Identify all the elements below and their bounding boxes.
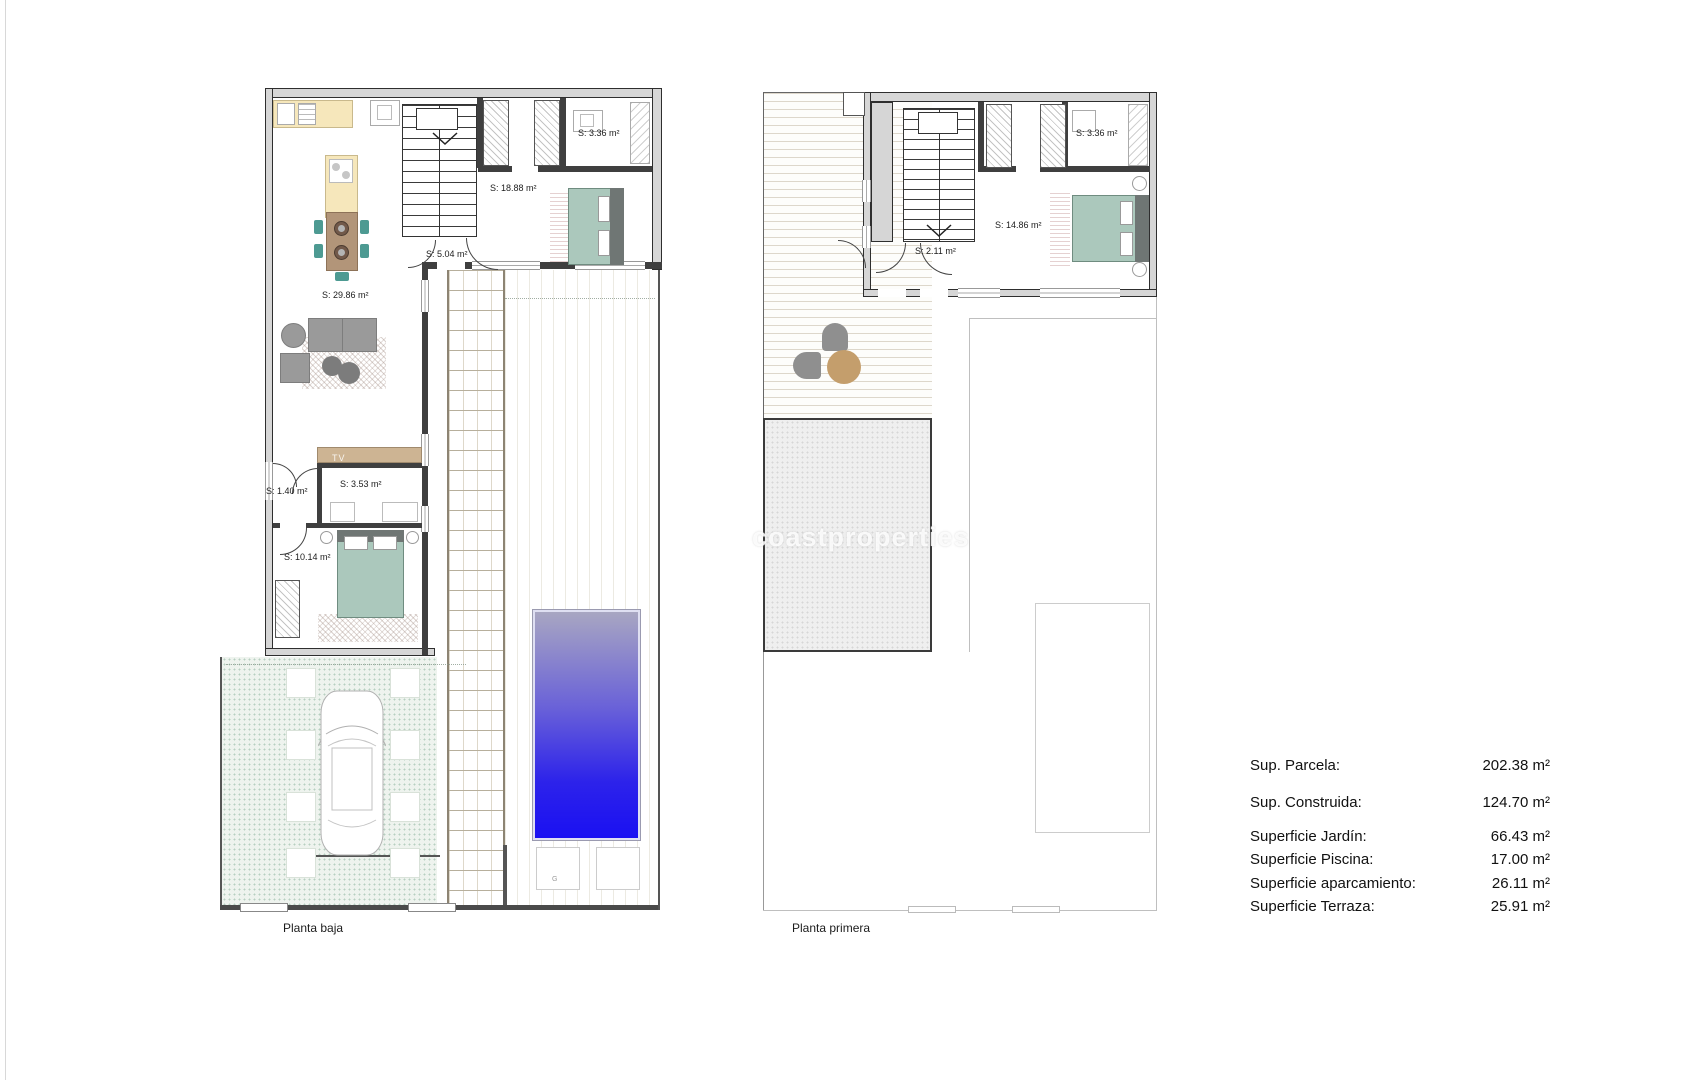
legend-label: Superficie Jardín: — [1250, 828, 1367, 846]
dining-chair — [314, 220, 323, 234]
exterior-wall-left — [265, 88, 273, 655]
room-area-label: S: 18.88 m² — [490, 183, 537, 193]
exterior-wall-top — [863, 92, 1157, 102]
swimming-pool — [533, 610, 640, 840]
wardrobe — [1040, 104, 1066, 168]
bed-headboard — [1135, 195, 1149, 262]
paver — [286, 730, 316, 760]
paver — [286, 792, 316, 822]
window — [421, 506, 429, 532]
roof-outline-line — [763, 910, 1157, 911]
room-area-label: S: 2.11 m² — [915, 246, 956, 256]
partition-closet-bath — [560, 98, 566, 168]
paver — [390, 848, 420, 878]
roof-outline-line — [969, 318, 1157, 319]
room-area-label: S: 1.40 m² — [266, 486, 308, 496]
bedroom-rug — [318, 614, 418, 642]
paver — [390, 792, 420, 822]
patio-dotted-line — [505, 298, 655, 299]
bed-pillow — [1120, 201, 1133, 225]
pool-pad — [596, 847, 640, 890]
paver — [286, 668, 316, 698]
legend-row: Sup. Construida: 124.70 m² — [1250, 794, 1550, 812]
stair-shaft-wall — [871, 102, 893, 242]
window — [862, 180, 871, 202]
wardrobe — [483, 100, 509, 166]
bed-pillow — [598, 196, 610, 222]
dining-chair — [314, 244, 323, 258]
closet-row-wall — [538, 166, 652, 172]
coffee-table — [338, 362, 360, 384]
dining-chair — [360, 244, 369, 258]
wardrobe — [275, 580, 300, 638]
room-area-label: S: 3.53 m² — [340, 479, 382, 489]
roof-outline-line — [969, 318, 970, 652]
sofa-seam — [342, 319, 343, 351]
door-gap — [878, 289, 906, 297]
roof-outline-line — [763, 652, 764, 910]
roof-notch — [908, 906, 956, 913]
window — [421, 280, 429, 312]
wardrobe — [986, 104, 1012, 168]
legend-value: 25.91 m² — [1491, 898, 1550, 916]
floorplan-sheet: G — [0, 0, 1700, 1080]
terrace-table — [827, 350, 861, 384]
kitchen-fridge — [277, 103, 295, 125]
stair-arrow-icon — [926, 224, 952, 238]
roof-notch — [1012, 906, 1060, 913]
burner — [332, 163, 340, 171]
stair-landing — [416, 108, 458, 130]
wall-stub — [503, 845, 507, 905]
deck-walkway — [447, 270, 505, 907]
ceiling-fan — [1132, 262, 1147, 277]
bathroom-sink-basin — [580, 114, 594, 127]
legend-label: Sup. Parcela: — [1250, 757, 1340, 775]
kitchen-oven — [298, 103, 316, 125]
legend-value: 26.11 m² — [1492, 875, 1550, 893]
door-arc — [280, 528, 307, 555]
plan-title-first: Planta primera — [792, 921, 870, 935]
car — [318, 688, 386, 858]
page-edge-line — [5, 0, 6, 1080]
partition-stairs-closet — [978, 102, 984, 168]
dining-chair — [335, 272, 349, 281]
bedroom-rug — [1050, 192, 1070, 266]
burner — [342, 171, 350, 179]
legend-row: Superficie aparcamiento: 26.11 m² — [1250, 875, 1550, 893]
stair-arrow-icon — [432, 132, 458, 146]
legend-value: 17.00 m² — [1491, 851, 1550, 869]
tv-label: TV — [332, 453, 346, 463]
room-area-label: S: 5.04 m² — [426, 249, 468, 259]
plan-title-ground: Planta baja — [283, 921, 343, 935]
wardrobe — [534, 100, 560, 166]
window — [1040, 288, 1120, 298]
dining-plate — [334, 221, 349, 236]
plot-boundary-right — [658, 270, 660, 910]
tv-sideboard: TV — [317, 447, 422, 463]
terrace-chair — [822, 323, 848, 351]
garden-dotted-line — [226, 664, 466, 665]
dining-plate — [334, 245, 349, 260]
legend-value: 202.38 m² — [1482, 757, 1550, 775]
legend-row: Superficie Jardín: 66.43 m² — [1250, 828, 1550, 846]
room-area-label: S: 3.36 m² — [578, 128, 620, 138]
pool-pad — [536, 847, 580, 890]
legend-value: 124.70 m² — [1482, 794, 1550, 812]
paver — [390, 668, 420, 698]
window — [421, 434, 429, 466]
stair-landing — [918, 112, 958, 134]
watermark-text: coastproperties — [752, 522, 970, 553]
building-bottom-wall — [265, 648, 435, 656]
room-area-label: S: 14.86 m² — [995, 220, 1042, 230]
exterior-wall-right — [1149, 92, 1157, 297]
wall-light — [320, 531, 333, 544]
legend-value: 66.43 m² — [1491, 828, 1550, 846]
square-pouf — [280, 353, 310, 383]
dining-chair — [360, 220, 369, 234]
bed-pillow — [344, 536, 368, 550]
pool-void-outline — [1035, 603, 1150, 833]
exterior-wall-top — [265, 88, 662, 98]
door-gap — [437, 262, 465, 269]
bed-pillow — [598, 230, 610, 256]
legend-label: Sup. Construida: — [1250, 794, 1362, 812]
bath-sink — [382, 502, 418, 522]
shower — [1128, 104, 1148, 166]
roof-outline-line — [1156, 297, 1157, 910]
exterior-wall-right — [652, 88, 662, 270]
door-arc — [273, 463, 297, 487]
shower-tray — [330, 502, 355, 522]
garage-mark: G — [552, 876, 557, 883]
legend-label: Superficie Terraza: — [1250, 898, 1375, 916]
paver — [390, 730, 420, 760]
wall-light — [406, 531, 419, 544]
legend-row: Superficie Terraza: 25.91 m² — [1250, 898, 1550, 916]
terrace-pillar — [843, 92, 865, 116]
shower — [630, 102, 650, 164]
legend-label: Superficie aparcamiento: — [1250, 875, 1416, 893]
legend-label: Superficie Piscina: — [1250, 851, 1373, 869]
room-area-label: S: 3.36 m² — [1076, 128, 1118, 138]
bed-pillow — [1120, 232, 1133, 256]
terrace-chair — [793, 352, 821, 379]
closet-row-wall — [478, 166, 512, 172]
paver — [286, 848, 316, 878]
legend-row: Superficie Piscina: 17.00 m² — [1250, 851, 1550, 869]
room-area-label: S: 29.86 m² — [322, 290, 369, 300]
round-pouf — [281, 323, 306, 348]
legend-row: Sup. Parcela: 202.38 m² — [1250, 757, 1550, 775]
gate — [240, 903, 288, 912]
kitchen-sink — [377, 105, 392, 120]
bed-pillow — [373, 536, 397, 550]
room-area-label: S: 10.14 m² — [284, 552, 331, 562]
gate — [408, 903, 456, 912]
window — [958, 288, 1000, 298]
bed-headboard — [610, 188, 624, 265]
bedroom-rug — [550, 190, 568, 262]
cooktop — [329, 159, 353, 183]
window — [862, 226, 871, 248]
door-gap — [920, 289, 948, 297]
ceiling-fan — [1132, 176, 1147, 191]
